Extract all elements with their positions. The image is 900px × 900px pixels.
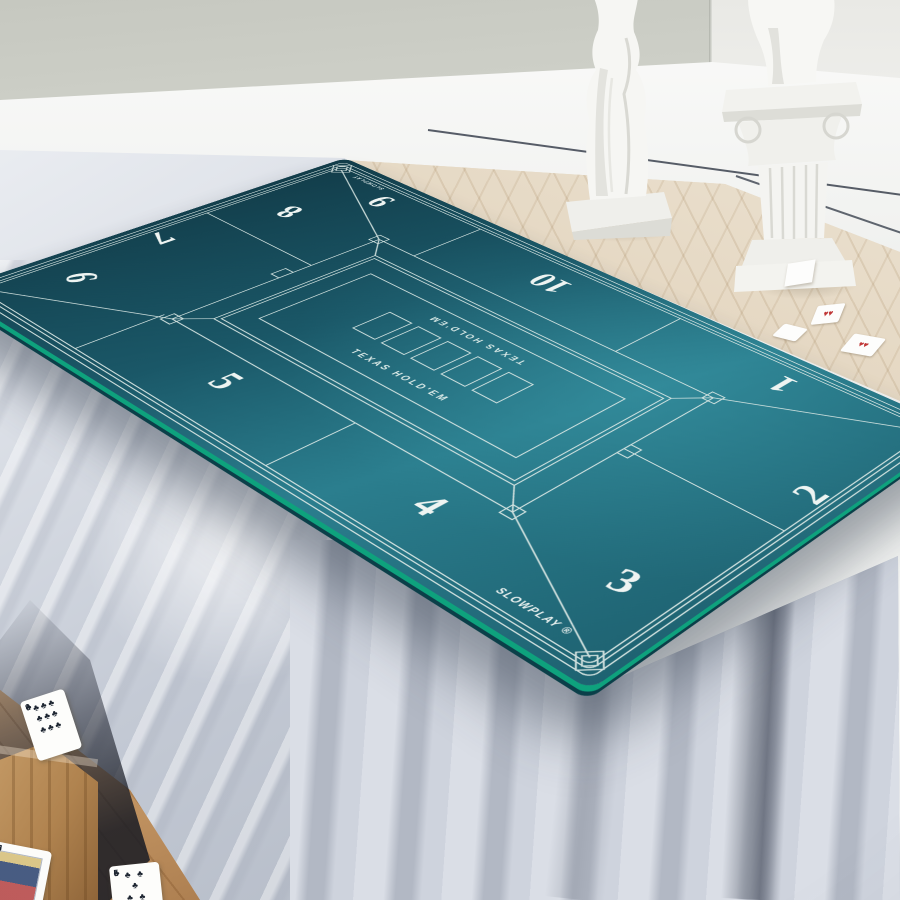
card-jack-of-spades: J♠ <box>0 841 52 900</box>
card-five-of-clubs: 5♣ ♣ ♣ ♣ ♣ ♣ <box>109 862 165 900</box>
card-pips: ♣♣♣ ♣♣♣ ♣♣♣ <box>25 694 72 738</box>
court-card-artwork <box>0 850 43 900</box>
photo-scene-poker-mat-room: ♥♥ ♥♥ <box>0 0 900 900</box>
card-pips: ♣ ♣ ♣ ♣ ♣ <box>113 867 158 900</box>
venus-statue <box>556 0 678 240</box>
bust-on-column <box>714 0 866 298</box>
card-pips: ♥♥ <box>855 341 870 350</box>
card-pips: ♥♥ <box>822 309 835 318</box>
